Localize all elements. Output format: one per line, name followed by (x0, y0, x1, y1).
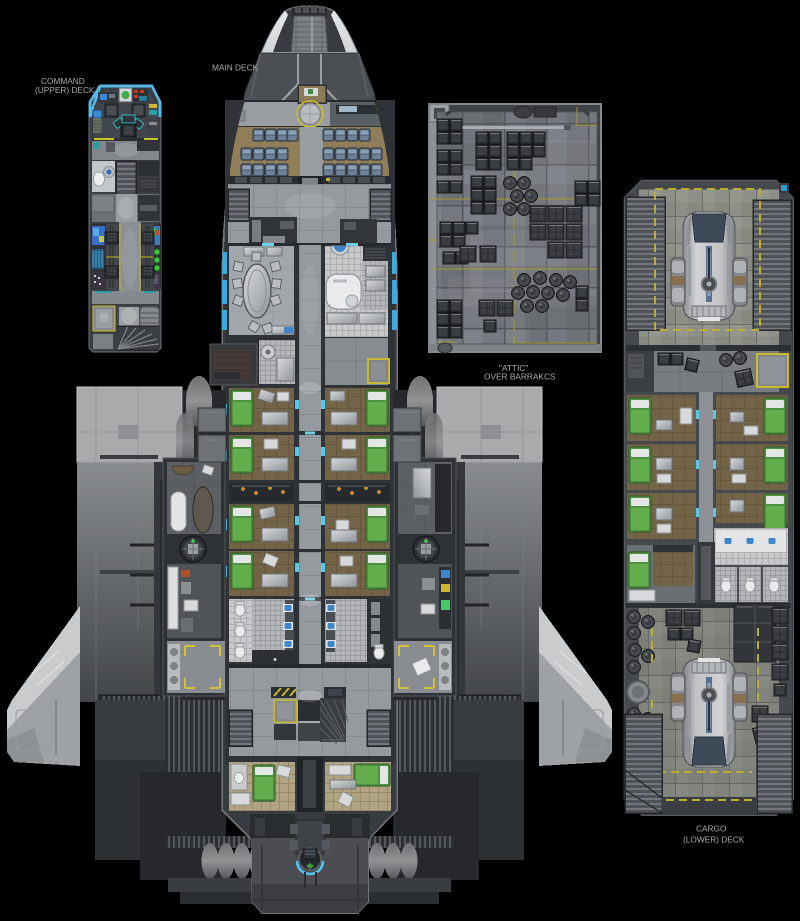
svg-text:CARGO: CARGO (696, 824, 727, 834)
svg-text:(UPPER) DECK: (UPPER) DECK (35, 85, 95, 95)
svg-text:(LOWER) DECK: (LOWER) DECK (683, 835, 745, 845)
svg-text:OVER BARRAKCS: OVER BARRAKCS (484, 372, 556, 382)
svg-text:MAIN DECK: MAIN DECK (212, 63, 259, 73)
